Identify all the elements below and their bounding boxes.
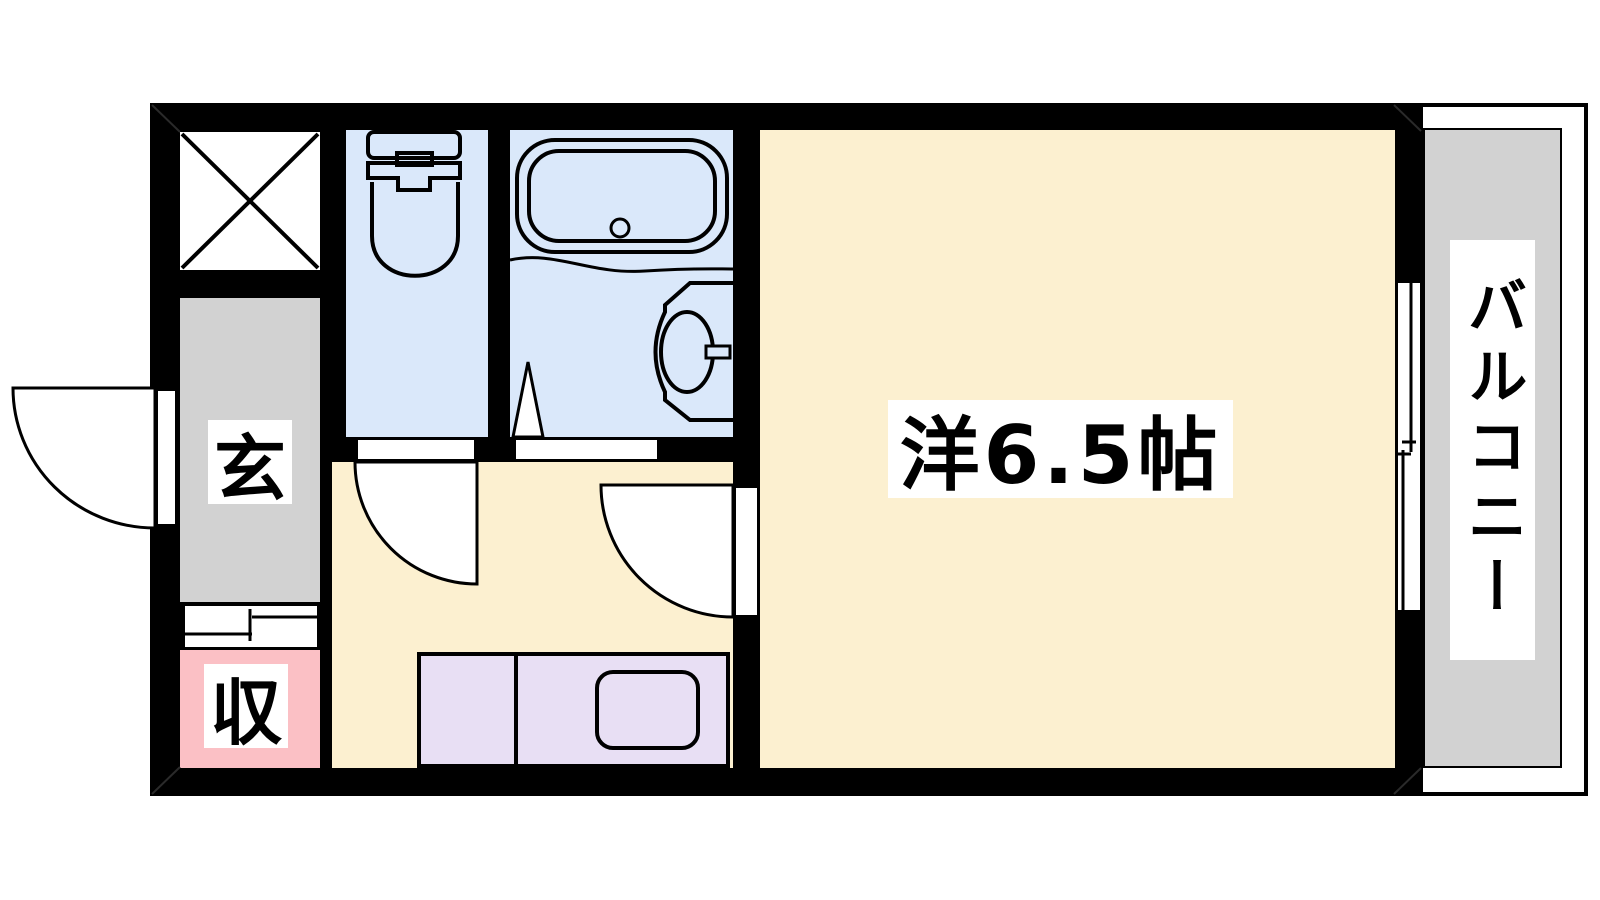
main-room-door-swing-icon [601,485,733,617]
entrance-door-swing-icon [13,388,155,528]
entrance-label: 玄 [208,420,292,504]
toilet-icon [368,132,460,276]
storage-label: 収 [204,664,288,748]
washbasin-icon [656,283,734,420]
western-room-label: 洋6.5帖 [888,400,1233,498]
balcony-label: バルコニー [1450,240,1535,660]
bathroom-door-icon [513,362,543,437]
sliding-door-icon [184,609,318,641]
sliding-window-icon [1397,283,1416,610]
pipe-space-x-icon [182,134,318,268]
floor-plan: 玄 収 洋6.5帖 バルコニー [0,0,1600,900]
bathtub-icon [510,140,733,271]
toilet-door-swing-icon [355,462,477,584]
